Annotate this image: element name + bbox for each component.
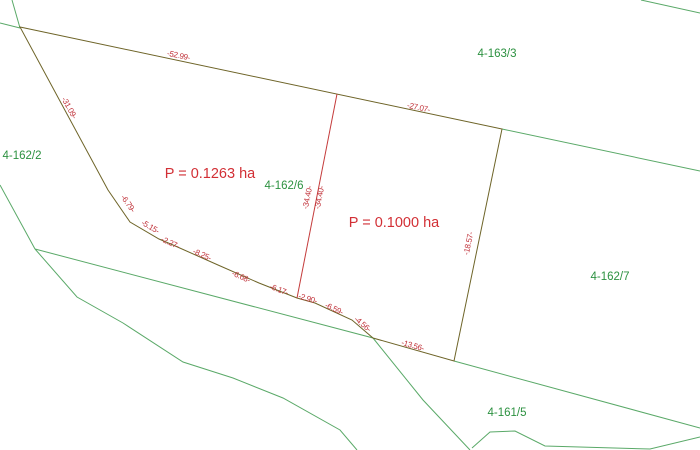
parcel-label-4-162-2: 4-162/2 bbox=[2, 150, 41, 162]
dim-label-top-right: -27.07- bbox=[406, 101, 431, 115]
parcel-label-4-162-7: 4-162/7 bbox=[590, 271, 629, 283]
dim-label-bottom-4: -6.59- bbox=[323, 301, 345, 317]
dim-label-bottom-2: -6.17- bbox=[268, 282, 290, 297]
plan-canvas: -52.99- -27.07- -31.09- -6.79- -5.15- -2… bbox=[0, 0, 700, 450]
neighbor-line-road-upper bbox=[35, 249, 470, 450]
area-label-0-1000-ha: P = 0.1000 ha bbox=[349, 215, 440, 231]
neighbor-line-road-lower bbox=[35, 249, 357, 450]
dim-label-bottom-5: -4.56- bbox=[352, 314, 373, 334]
dim-label-bottom-1: -6.68- bbox=[230, 269, 252, 285]
dim-label-right-edge: -18.57- bbox=[462, 231, 476, 256]
dim-label-bottom-3: -2.90- bbox=[297, 292, 318, 306]
dim-label-lower-left-2: -5.15- bbox=[140, 218, 162, 236]
cadastral-plan: -52.99- -27.07- -31.09- -6.79- -5.15- -2… bbox=[0, 0, 700, 450]
neighbor-line-topleft-a bbox=[12, 0, 20, 28]
neighbor-line-topleft-b bbox=[0, 23, 20, 28]
dim-label-divider-east: -34.40- bbox=[313, 185, 326, 210]
dim-label-lower-left-3: -2.27- bbox=[159, 235, 181, 251]
parcel-label-4-162-6: 4-162/6 bbox=[264, 180, 303, 192]
dim-label-upper-left: -31.09- bbox=[60, 95, 79, 120]
dim-label-lower-left-4: -8.25- bbox=[191, 247, 213, 263]
neighbor-line-topright bbox=[641, 0, 700, 13]
parcel-label-4-161-5: 4-161/5 bbox=[487, 407, 526, 419]
dim-label-bottom-6: -13.56- bbox=[400, 338, 425, 353]
neighbor-line-east-from-corner bbox=[502, 129, 700, 171]
dim-label-lower-left-1: -6.79- bbox=[119, 193, 138, 214]
neighbor-line-bottom bbox=[472, 431, 700, 449]
neighbor-line-west bbox=[0, 185, 35, 249]
area-label-0-1263-ha: P = 0.1263 ha bbox=[165, 166, 256, 182]
parcel-label-4-163-3: 4-163/3 bbox=[477, 48, 516, 60]
subject-parcel-boundary bbox=[20, 27, 502, 361]
